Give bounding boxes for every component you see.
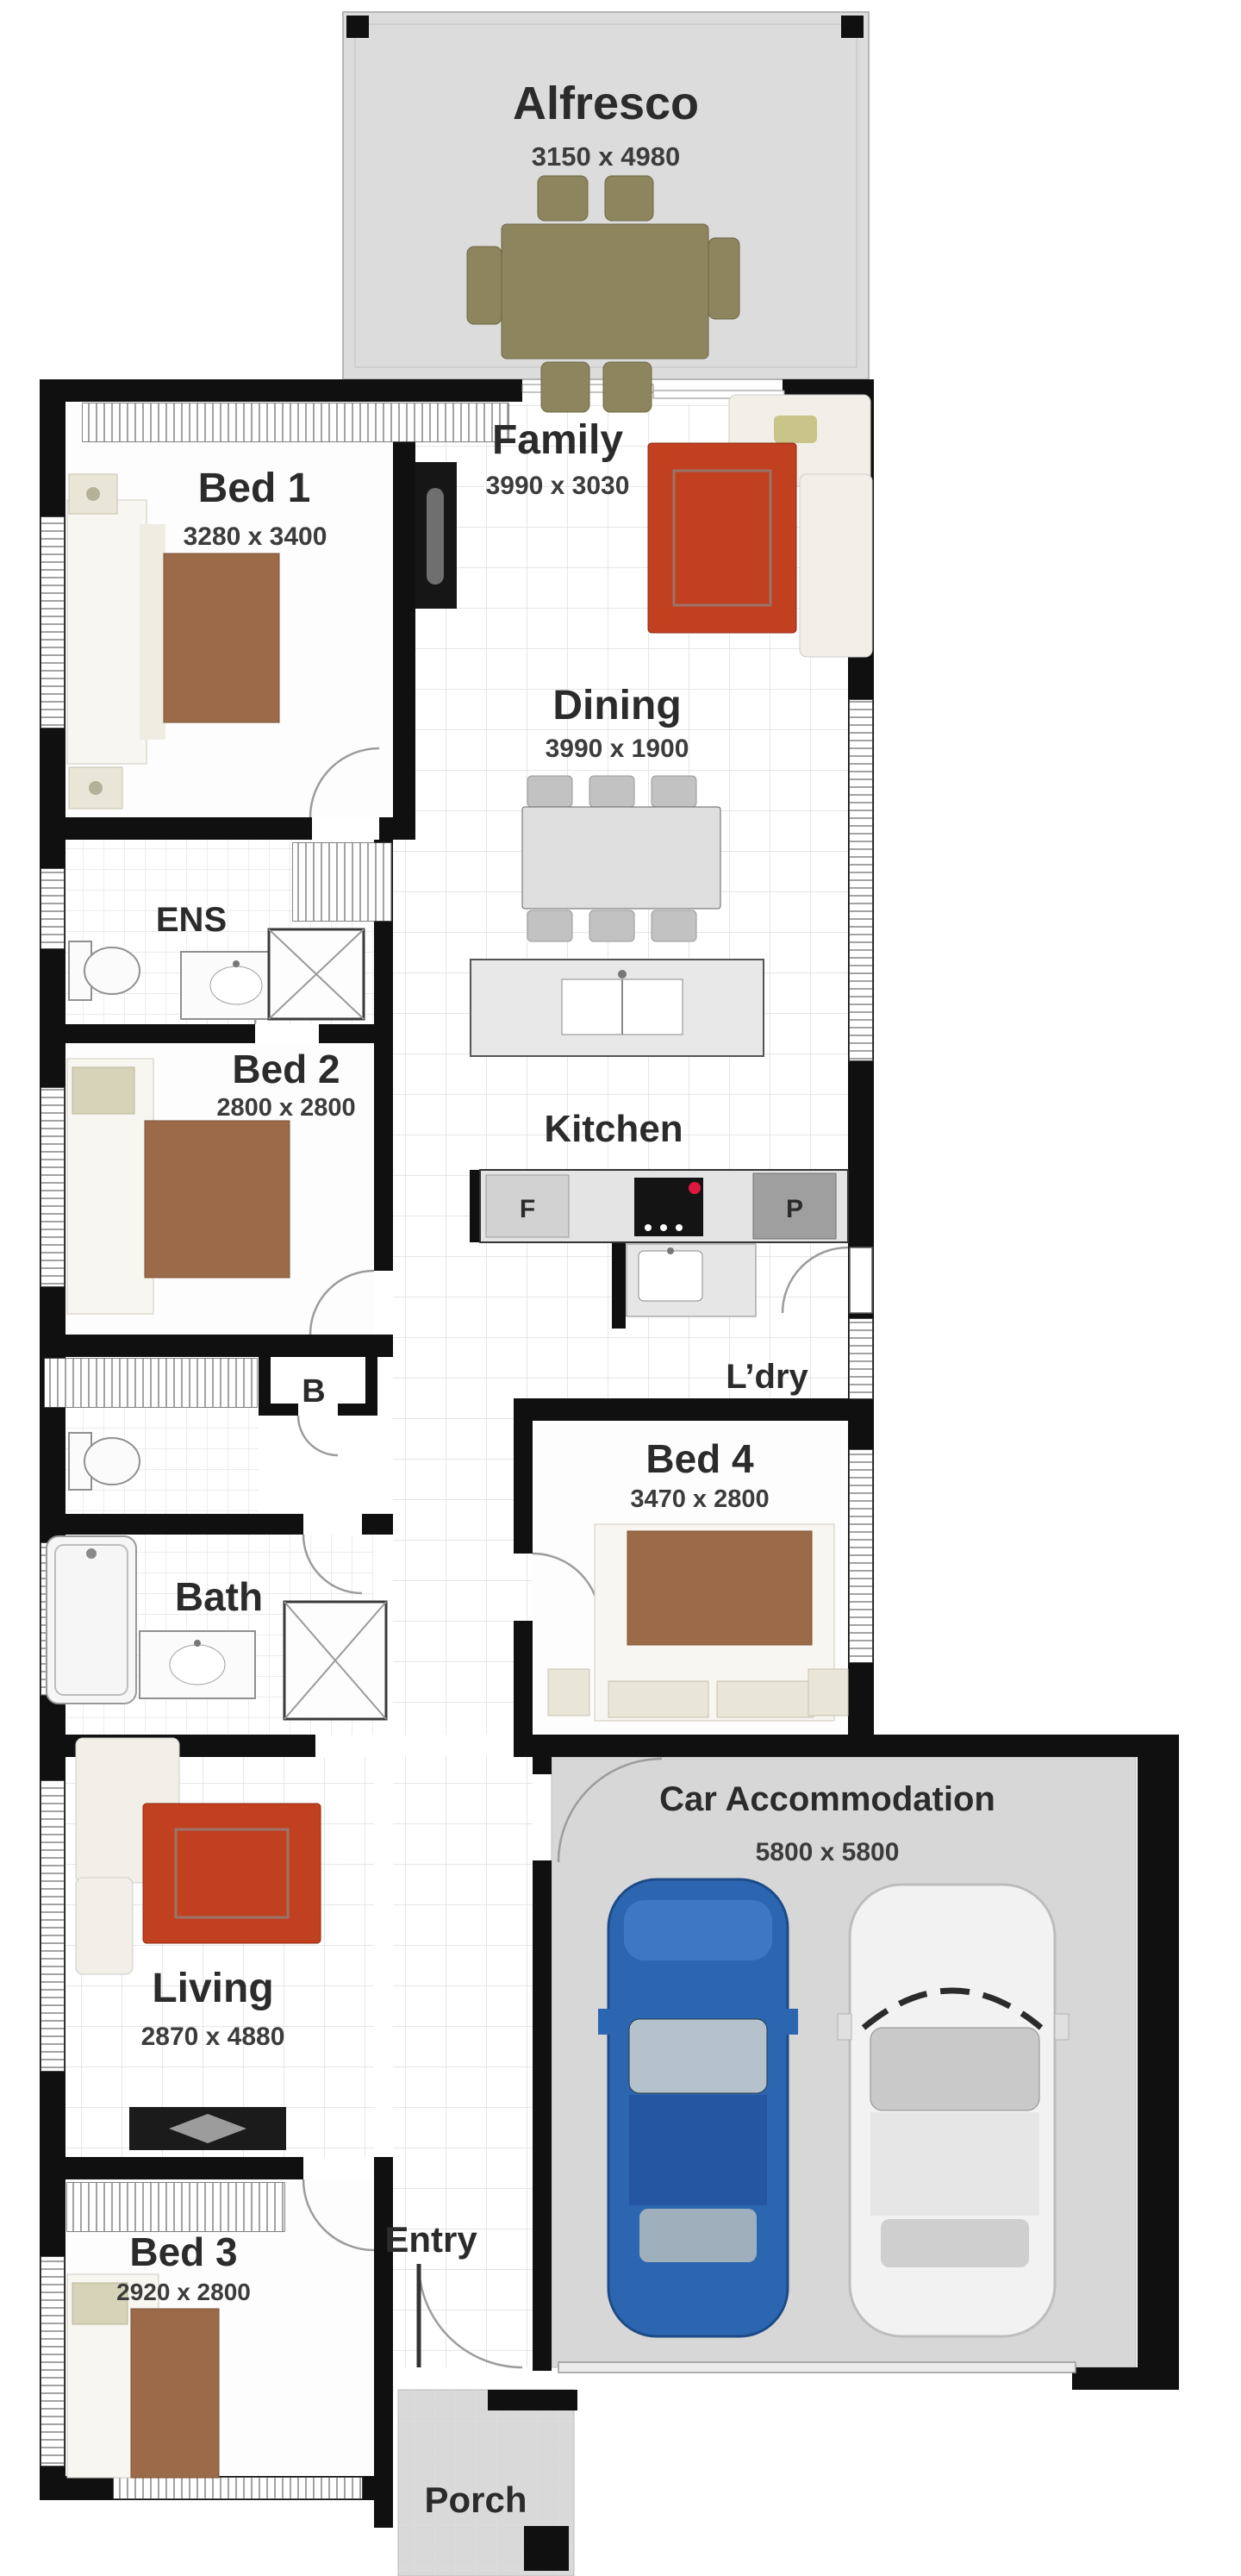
cooktop-knob	[660, 1224, 667, 1231]
dining-chair	[589, 776, 634, 807]
blue-car	[598, 1879, 798, 2336]
kitchen-island-group	[471, 960, 764, 1056]
wall-bed3-right	[374, 2157, 393, 2528]
window-bed1-left-hatch	[41, 517, 64, 728]
wall-b-bottom-a	[259, 1404, 298, 1416]
white-car-windshield	[870, 2028, 1039, 2110]
bath-basin	[170, 1645, 225, 1685]
sofa-red-living	[143, 1804, 321, 1943]
wall-bed4-left-a	[514, 1398, 533, 1554]
room-label-ldry: L’dry	[726, 1358, 808, 1396]
cooktop-knob	[645, 1224, 652, 1231]
wall-bed1-bottom-a	[65, 817, 312, 840]
bed1-quilt	[164, 553, 279, 722]
ens-toilet-bowl	[84, 947, 140, 994]
window-bed3-left-hatch	[41, 2257, 64, 2466]
living-tv-unit	[129, 2107, 286, 2150]
laundry-trough	[639, 1251, 702, 1301]
fridge-label: F	[520, 1195, 535, 1223]
bed4-side-table	[548, 1669, 589, 1716]
room-dims-alfresco: 3150 x 4980	[532, 141, 680, 172]
ens-tap	[233, 960, 240, 967]
sofa-white-section	[76, 1878, 133, 1974]
outdoor-chair	[708, 238, 739, 319]
window-laundry-right-hatch	[850, 1319, 872, 1398]
white-car	[838, 1885, 1069, 2336]
cooktop-burner-red	[689, 1182, 701, 1194]
blue-car-mirror	[786, 2009, 798, 2035]
blue-car-hood	[624, 1900, 772, 1960]
outdoor-chair	[538, 176, 588, 221]
room-dims-dining: 3990 x 1900	[546, 735, 689, 763]
porch-step	[524, 2526, 569, 2571]
wall-garage-foot	[1072, 2367, 1179, 2390]
room-label-bath: Bath	[175, 1574, 263, 1619]
wall-bed4-top	[533, 1398, 874, 1421]
dining-chair	[652, 910, 696, 941]
wall-porch-stub	[488, 2390, 577, 2410]
alfresco-post-right	[841, 16, 864, 38]
window-living-left-hatch	[41, 1781, 64, 2071]
bed1-lamp	[89, 781, 103, 795]
robe-bed1-wir-hatch	[293, 843, 391, 921]
room-dims-car: 5800 x 5800	[756, 1838, 900, 1866]
outdoor-chair	[467, 247, 502, 324]
wall-bed4-left-b	[514, 1621, 533, 1735]
white-car-roof	[870, 2112, 1039, 2216]
sofa-cushion	[774, 416, 817, 443]
room-label-porch: Porch	[424, 2479, 527, 2520]
room-label-bed3: Bed 3	[129, 2229, 237, 2274]
wall-ens-bottom-a	[40, 1024, 255, 1043]
room-label-family: Family	[492, 417, 623, 463]
wall-laundry-left	[612, 1242, 626, 1329]
outdoor-chair	[603, 362, 652, 412]
laundry-group	[627, 1244, 756, 1316]
wall-garage-right	[1138, 1757, 1179, 2367]
dining-chair	[652, 776, 696, 807]
window-ens-left-hatch	[41, 869, 64, 948]
room-label-kitchen: Kitchen	[544, 1108, 683, 1150]
wall-bed1-family	[393, 403, 415, 840]
dining-set	[522, 776, 720, 941]
floor-plan-page: Alfresco 3150 x 4980 Bed 1 3280 x 3400 F…	[0, 0, 1241, 2576]
wall-b-bottom-b	[338, 1404, 377, 1416]
tv-screen-family	[427, 488, 444, 585]
wall-bench-cap	[470, 1170, 480, 1242]
bath-tap	[194, 1640, 201, 1647]
window-bed4-right-hatch	[850, 1450, 872, 1662]
dining-chair	[527, 910, 572, 941]
bed4-pillow	[717, 1681, 814, 1717]
room-label-bed1: Bed 1	[198, 466, 311, 511]
room-label-bed4: Bed 4	[645, 1436, 754, 1481]
room-label-dining: Dining	[552, 683, 681, 728]
wc-toilet-bowl	[84, 1438, 140, 1485]
alfresco-post-left	[346, 16, 369, 38]
robe-bed2-hatch	[45, 1359, 257, 1407]
wall-living-bottom	[40, 2157, 303, 2179]
wall-bed2-bottom	[40, 1335, 393, 1357]
garage-door	[558, 2362, 1076, 2373]
room-dims-bed1: 3280 x 3400	[184, 522, 327, 551]
bed1-sheet	[140, 524, 165, 740]
bed2-quilt	[145, 1121, 290, 1278]
bed1-mattress	[67, 500, 147, 764]
wall-bath-top-b	[362, 1514, 393, 1535]
bed4-quilt	[627, 1531, 812, 1645]
bathtub-tap	[86, 1548, 97, 1559]
room-dims-bed4: 3470 x 2800	[630, 1485, 769, 1513]
bed4-pillow	[608, 1681, 708, 1717]
window-bed3-bottom-hatch	[114, 2478, 362, 2498]
wall-bed2-right	[374, 1043, 393, 1271]
dining-table	[522, 807, 720, 909]
wall-bath-top-a	[40, 1514, 303, 1535]
room-label-ens: ENS	[156, 901, 227, 939]
room-dims-bed3: 2920 x 2800	[116, 2279, 251, 2305]
floor-plan-svg: Alfresco 3150 x 4980 Bed 1 3280 x 3400 F…	[0, 0, 1241, 2576]
wall-top-left	[40, 379, 522, 402]
room-label-bed2: Bed 2	[232, 1047, 340, 1091]
ens-basin	[210, 966, 262, 1004]
sink-tap	[618, 970, 627, 979]
blue-car-windshield	[629, 2019, 767, 2093]
dining-chair	[589, 910, 634, 941]
bed3-quilt	[131, 2309, 219, 2478]
room-label-alfresco: Alfresco	[513, 78, 699, 129]
trough-tap	[667, 1247, 674, 1254]
blue-car-rear-window	[639, 2209, 757, 2262]
window-bed1-top-hatch	[83, 403, 508, 441]
white-car-rear-window	[881, 2219, 1029, 2267]
room-dims-bed2: 2800 x 2800	[216, 1094, 355, 1122]
outdoor-chair	[605, 176, 653, 221]
blue-car-roof	[629, 2095, 767, 2205]
white-car-mirror	[838, 2014, 851, 2040]
door-arc-b	[298, 1416, 338, 1455]
outdoor-chair	[541, 362, 589, 412]
wall-garage-left-b	[533, 1860, 552, 2371]
room-label-b: B	[302, 1373, 325, 1410]
room-dims-family: 3990 x 3030	[486, 472, 630, 500]
room-label-car: Car Accommodation	[659, 1780, 995, 1818]
bathtub	[47, 1536, 136, 1704]
family-tv-unit	[415, 462, 457, 609]
white-car-mirror	[1055, 2014, 1069, 2040]
wall-bed4-bottom	[514, 1735, 874, 1757]
sofa-white-section	[800, 474, 872, 657]
wall-garage-top	[874, 1735, 1179, 1757]
robe-bed3-hatch	[67, 2183, 284, 2231]
window-dining-right-hatch	[850, 700, 872, 1060]
room-label-living: Living	[152, 1966, 273, 2011]
window-bed2-left-hatch	[41, 1088, 64, 1286]
laundry-door-gap	[850, 1247, 872, 1313]
wall-garage-left-a	[533, 1757, 552, 1774]
room-label-entry: Entry	[384, 2219, 477, 2260]
bed1-lamp	[86, 487, 100, 501]
bed2-pillow	[72, 1067, 134, 1114]
blue-car-mirror	[598, 2009, 610, 2035]
entry-tiles	[393, 1755, 533, 2367]
cooktop-knob	[676, 1224, 683, 1231]
dining-chair	[527, 776, 572, 807]
pantry-label: P	[786, 1195, 803, 1223]
room-dims-living: 2870 x 4880	[141, 2023, 285, 2051]
outdoor-table	[502, 224, 708, 359]
bed4-side-table	[808, 1669, 848, 1716]
